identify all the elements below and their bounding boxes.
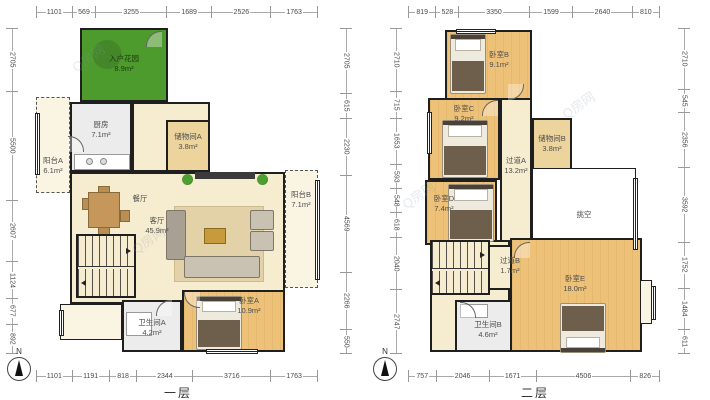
dimension-label: 810	[639, 9, 653, 16]
dimension-label: 1763	[285, 373, 303, 380]
room-name: 入户花园	[94, 54, 154, 64]
dimension-segment: 2705	[6, 28, 18, 91]
room-area: 13.2m²	[486, 166, 546, 176]
floor1-title: 一层	[164, 384, 192, 400]
room-label-entry-garden: 入户花园 8.9m²	[94, 54, 154, 74]
room-balcony-b	[285, 170, 318, 288]
room-name: 厨房	[78, 120, 124, 130]
dimension-label: 677	[9, 304, 16, 318]
dimension-label: 892	[9, 332, 16, 346]
dimension-label: 3350	[485, 9, 503, 16]
bed-blanket	[444, 146, 486, 175]
dimension-segment: 1689	[166, 6, 212, 18]
dimension-segment: 818	[109, 370, 137, 382]
dimension-label: 2344	[156, 373, 174, 380]
dimension-label: 826	[638, 373, 652, 380]
tv-cabinet	[195, 172, 255, 179]
window-icon	[633, 178, 638, 250]
dimension-label: 1191	[82, 373, 99, 380]
dimension-label: 2640	[594, 9, 612, 16]
dimension-segment: 1653	[390, 118, 402, 164]
room-label-corridor-a: 过道A 13.2m²	[486, 156, 546, 176]
room-area: 7.4m²	[424, 204, 464, 214]
dimension-segment: 2356	[678, 112, 690, 167]
room-label-living: 客厅 45.9m²	[128, 216, 186, 236]
niche-balcony	[60, 304, 122, 340]
dimension-segment: 611	[678, 329, 690, 354]
window-icon	[427, 112, 432, 154]
dimension-label: 528	[440, 9, 454, 16]
dimension-label: 818	[116, 373, 130, 380]
dimension-segment: 3255	[95, 6, 166, 18]
stove-burner-icon	[86, 158, 93, 165]
room-balcony-a	[36, 97, 70, 193]
compass: N	[372, 348, 398, 381]
window-icon	[206, 349, 258, 354]
stairs-up-arrow-icon	[126, 248, 131, 254]
bed-pillow	[448, 125, 481, 137]
dimension-segment: 715	[390, 91, 402, 118]
stairs-divider	[432, 268, 488, 271]
dimension-segment: 2607	[6, 200, 18, 261]
compass: N	[6, 348, 32, 381]
room-area: 8.9m²	[94, 64, 154, 74]
room-label-storage-a: 储物间A 3.8m²	[166, 132, 210, 152]
dimension-label: 1752	[681, 256, 688, 274]
compass-needle-icon	[15, 360, 23, 376]
compass-circle	[7, 357, 31, 381]
window-icon	[59, 310, 64, 336]
dimension-label: 4569	[343, 215, 350, 233]
floor2-plan: 卧室B 9.1m² 过道A 13.2m² 卧室C 9.2m²	[408, 28, 660, 354]
dimension-segment: 1191	[72, 370, 109, 382]
dimension-label: 3592	[681, 196, 688, 214]
room-name: 卧室D	[424, 194, 464, 204]
bed-blanket	[198, 320, 240, 347]
dimension-label: 1484	[681, 300, 688, 318]
floor2-title: 二层	[521, 384, 549, 400]
dimension-segment: 1763	[270, 6, 318, 18]
dimension-label: 2040	[393, 255, 400, 273]
dimension-segment: 2344	[136, 370, 192, 382]
room-name: 挑空	[558, 210, 610, 220]
dimension-label: 593	[393, 170, 400, 184]
dimension-segment: 5500	[6, 91, 18, 200]
dimension-label: 548	[393, 194, 400, 208]
dimension-label: 2705	[343, 52, 350, 70]
room-area: 9.1m²	[470, 60, 528, 70]
dimension-label: 2710	[393, 51, 400, 69]
dimension-label: 569	[77, 9, 91, 16]
room-label-dining: 餐厅	[120, 194, 160, 204]
dimension-segment: 677	[6, 298, 18, 324]
room-name: 储物间A	[166, 132, 210, 142]
dimension-segment: 757	[408, 370, 436, 382]
plant-icon	[257, 174, 268, 185]
coffee-table	[204, 228, 226, 244]
dimension-label: 1101	[46, 9, 63, 16]
dimension-segment: 2230	[340, 118, 352, 175]
dim-chain-floor1-top: 11015693255168925261763	[36, 6, 318, 18]
dimension-segment: 545	[678, 89, 690, 112]
dimension-label: 615	[343, 99, 350, 113]
room-label-bath-b: 卫生间B 4.6m²	[458, 320, 518, 340]
bed-pillow	[566, 337, 599, 348]
bed-headboard	[561, 348, 605, 352]
dimension-segment: 2040	[390, 237, 402, 289]
room-area: 3.8m²	[530, 144, 574, 154]
dimension-segment: 1101	[36, 370, 72, 382]
dimension-segment: 548	[390, 188, 402, 212]
stairs	[430, 240, 490, 295]
dimension-label: 3255	[122, 9, 140, 16]
dimension-label: 1101	[46, 373, 63, 380]
room-area: 7.1m²	[78, 130, 124, 140]
room-label-storage-b: 储物间B 3.8m²	[530, 134, 574, 154]
room-label-bath-a: 卫生间A 4.2m²	[124, 318, 180, 338]
dimension-segment: 826	[630, 370, 660, 382]
dimension-label: 1689	[180, 9, 198, 16]
room-area: 45.9m²	[128, 226, 186, 236]
dimension-label: 2046	[454, 373, 472, 380]
room-name: 卧室E	[546, 274, 604, 284]
dimension-label: 2607	[9, 222, 16, 240]
dimension-segment: 593	[390, 164, 402, 188]
bed-blanket	[450, 210, 492, 239]
dimension-label: 2526	[233, 9, 251, 16]
dimension-label: 618	[393, 218, 400, 232]
dimension-segment: 1101	[36, 6, 72, 18]
dim-chain-floor2-bottom: 757204616714506826	[408, 370, 660, 382]
sofa	[184, 256, 260, 278]
dimension-label: 5500	[9, 137, 16, 155]
dimension-segment: 2046	[436, 370, 489, 382]
dimension-segment: 1484	[678, 288, 690, 330]
dimension-segment: 3350	[458, 6, 529, 18]
dimension-label: 4506	[575, 373, 593, 380]
room-area: 1.7m²	[484, 266, 536, 276]
room-name: 客厅	[128, 216, 186, 226]
room-name: 卧室B	[470, 50, 528, 60]
room-label-bedroom-a: 卧室A 10.9m²	[220, 296, 278, 316]
room-name: 卧室A	[220, 296, 278, 306]
dimension-segment: 2526	[211, 6, 270, 18]
dimension-segment: 819	[408, 6, 435, 18]
bed	[442, 120, 488, 178]
room-area: 3.8m²	[166, 142, 210, 152]
bed-blanket	[562, 306, 604, 331]
dimension-label: 2356	[681, 131, 688, 149]
stairs	[76, 234, 136, 298]
dimension-label: 1763	[285, 9, 303, 16]
room-area: 18.0m²	[546, 284, 604, 294]
compass-north-label: N	[6, 348, 32, 356]
room-name: 储物间B	[530, 134, 574, 144]
stove-burner-icon	[100, 158, 107, 165]
dimension-segment: 528	[435, 6, 458, 18]
dimension-segment: 2640	[572, 6, 632, 18]
room-label-bedroom-b: 卧室B 9.1m²	[470, 50, 528, 70]
dimension-segment: 550	[340, 329, 352, 354]
dimension-label: 2230	[343, 138, 350, 156]
dimension-label: 2705	[9, 51, 16, 69]
floor1-plan: 阳台A 6.1m² 入户花园 8.9m² 厨房 7.1m² 储物间A 3.8m²	[36, 28, 318, 354]
dimension-label: 757	[415, 373, 429, 380]
compass-circle	[373, 357, 397, 381]
dimension-label: 545	[681, 94, 688, 108]
dimension-label: 3716	[223, 373, 241, 380]
room-area: 4.6m²	[458, 330, 518, 340]
dim-chain-floor2-top: 819528335015992640810	[408, 6, 660, 18]
dimension-segment: 2710	[390, 28, 402, 91]
dimension-segment: 569	[72, 6, 96, 18]
room-name: 卫生间B	[458, 320, 518, 330]
dimension-label: 611	[681, 335, 688, 348]
dimension-label: 819	[415, 9, 429, 16]
dimension-segment: 1124	[6, 261, 18, 298]
dimension-segment: 1671	[489, 370, 536, 382]
room-area: 10.9m²	[220, 306, 278, 316]
dimension-segment: 3716	[192, 370, 270, 382]
room-label-corridor-b: 过道B 1.7m²	[484, 256, 536, 276]
stairs-divider	[78, 266, 134, 269]
dimension-label: 1671	[504, 373, 522, 380]
room-label-bedroom-e: 卧室E 18.0m²	[546, 274, 604, 294]
dimension-label: 1124	[9, 272, 16, 289]
dim-chain-floor1-bottom: 11011191818234437161763	[36, 370, 318, 382]
stairs-down-arrow-icon	[81, 280, 86, 286]
room-name: 卫生间A	[124, 318, 180, 328]
dimension-label: 2747	[393, 313, 400, 331]
dimension-label: 1653	[393, 132, 400, 150]
dining-table	[88, 192, 120, 228]
dimension-label: 2266	[343, 292, 350, 310]
dimension-segment: 810	[632, 6, 660, 18]
dim-chain-floor2-left: 2710715165359354861820402747	[390, 28, 402, 354]
room-name: 餐厅	[120, 194, 160, 204]
dimension-label: 1599	[542, 9, 560, 16]
dim-chain-floor1-right: 2705615223045692266550	[340, 28, 352, 354]
dimension-segment: 2266	[340, 272, 352, 329]
dimension-label: 715	[393, 98, 400, 112]
room-label-bedroom-d: 卧室D 7.4m²	[424, 194, 464, 214]
room-area: 4.2m²	[124, 328, 180, 338]
window-icon	[651, 286, 656, 320]
dimension-label: 2710	[681, 50, 688, 68]
window-icon	[35, 113, 40, 175]
dim-chain-floor1-left: 2705550026071124677892	[6, 28, 18, 354]
room-label-kitchen: 厨房 7.1m²	[78, 120, 124, 140]
dimension-segment: 3592	[678, 167, 690, 242]
dimension-segment: 4569	[340, 175, 352, 272]
plant-icon	[182, 174, 193, 185]
dimension-segment: 615	[340, 93, 352, 118]
dim-chain-floor2-right: 27105452356359217521484611	[678, 28, 690, 354]
armchair	[250, 231, 274, 251]
dimension-segment: 1752	[678, 242, 690, 288]
room-name: 过道A	[486, 156, 546, 166]
dimension-segment: 618	[390, 212, 402, 237]
dimension-label: 550	[343, 335, 350, 349]
dimension-segment: 2747	[390, 289, 402, 354]
window-icon	[456, 29, 496, 34]
compass-north-label: N	[372, 348, 398, 356]
dimension-segment: 2705	[340, 28, 352, 93]
dimension-segment: 2710	[678, 28, 690, 89]
floorplan-canvas: Q房网 Q房网 Q房网 Q房网 11015693255168925261763 …	[0, 0, 710, 400]
armchair	[250, 210, 274, 230]
stairs-down-arrow-icon	[435, 280, 440, 286]
dimension-segment: 1763	[270, 370, 318, 382]
dimension-segment: 1599	[529, 6, 572, 18]
room-label-void: 挑空	[558, 210, 610, 220]
compass-needle-icon	[381, 360, 389, 376]
bed	[560, 303, 606, 353]
window-icon	[315, 180, 320, 280]
dimension-segment: 4506	[536, 370, 631, 382]
